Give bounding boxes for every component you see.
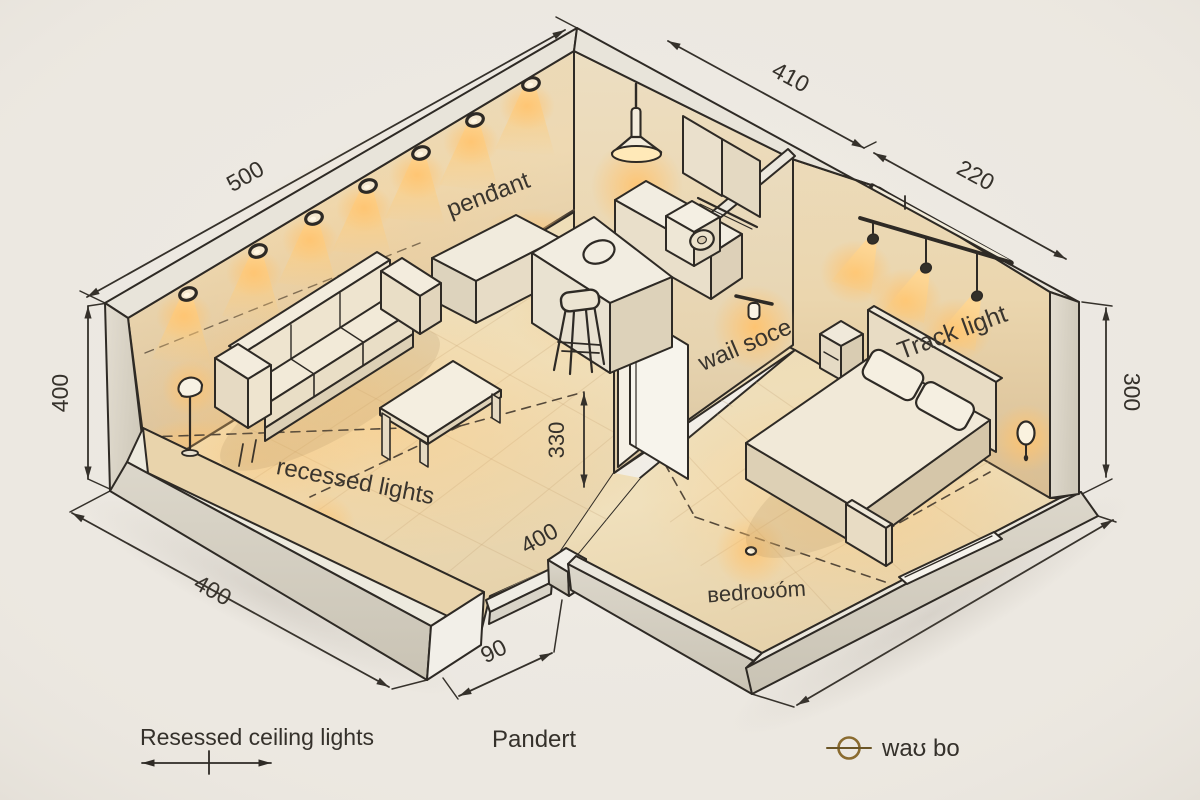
svg-text:330: 330	[544, 422, 569, 459]
svg-text:waʊ bo: waʊ bo	[881, 735, 960, 762]
svg-text:300: 300	[1119, 373, 1145, 411]
svg-text:400: 400	[47, 374, 73, 412]
svg-text:Pandert: Pandert	[492, 726, 576, 753]
svg-text:Resessed ceiling lights: Resessed ceiling lights	[140, 724, 374, 750]
